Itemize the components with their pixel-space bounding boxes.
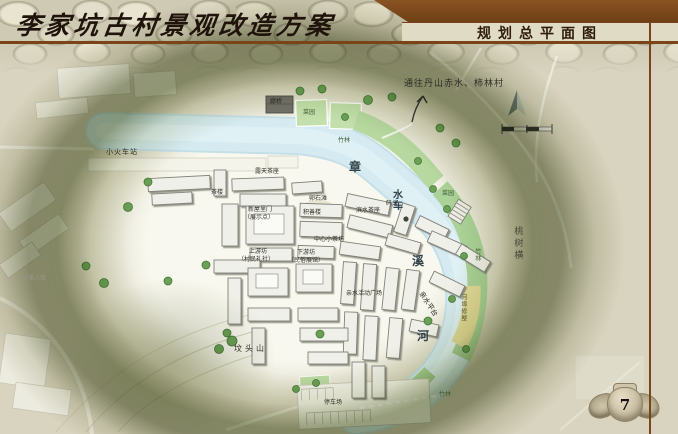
north-arrow-icon (508, 90, 526, 116)
label-upper-quarter: 上游坊 (249, 249, 267, 256)
label-peach-grove: 桃树横 (512, 226, 522, 262)
label-waterside-tea: 滨水茶座 (356, 208, 380, 215)
river-char-xi: 溪 (412, 255, 425, 269)
label-xinwulimen: 新屋里门 (248, 207, 272, 214)
header-rule (0, 41, 678, 44)
label-lower-quarter: 下游坊 (297, 250, 315, 257)
map-svg (0, 0, 678, 434)
label-wharf-renovation: 河埠修整 (459, 294, 466, 322)
header-subtitle: 规划总平面图 (402, 22, 678, 42)
page-number: 7 (607, 387, 643, 422)
label-pebble-beach: 卵石滩 (309, 196, 327, 203)
label-bamboo-right: 竹林 (473, 248, 480, 262)
label-waterfront-square: 亲水活动广场 (346, 291, 382, 298)
label-lower-quarter-note: （民俗展馆） (288, 258, 324, 265)
label-huaxi-homes: 花溪人家 (22, 276, 46, 283)
label-garden-top: 菜园 (303, 110, 315, 117)
route-annotation: 通往丹山赤水、柿林村 (404, 76, 504, 89)
right-vertical-rule (649, 22, 651, 434)
river-char-he: 河 (417, 330, 430, 344)
label-grave-hill: 坟头山 (234, 344, 267, 353)
label-covered-bridge: 廊桥 (270, 99, 282, 106)
page-title: 李家坑古村景观改造方案 (13, 6, 337, 42)
label-teahouse: 茶楼 (211, 190, 223, 197)
label-train-station: 小火车站 (106, 148, 138, 156)
label-jishanlou: 积善楼 (303, 210, 321, 217)
scale-bar (502, 124, 552, 134)
label-garden-right: 菜园 (442, 191, 454, 198)
label-central-teahouse: 中心小茶坊 (314, 237, 344, 244)
label-upper-quarter-note: （村民礼社） (238, 257, 274, 264)
label-openair-tea: 露天茶座 (255, 169, 279, 176)
label-bamboo-bottom: 竹林 (439, 392, 451, 399)
water-wheel-marker (403, 216, 408, 221)
label-bamboo-top: 竹林 (338, 138, 350, 145)
label-exhibit-point: （展示点） (244, 215, 274, 222)
label-dock: 码头 (386, 201, 398, 208)
label-parking: 停车场 (324, 400, 342, 407)
header-brown-bar (374, 0, 678, 22)
river-char-zhang: 章 (349, 161, 362, 175)
